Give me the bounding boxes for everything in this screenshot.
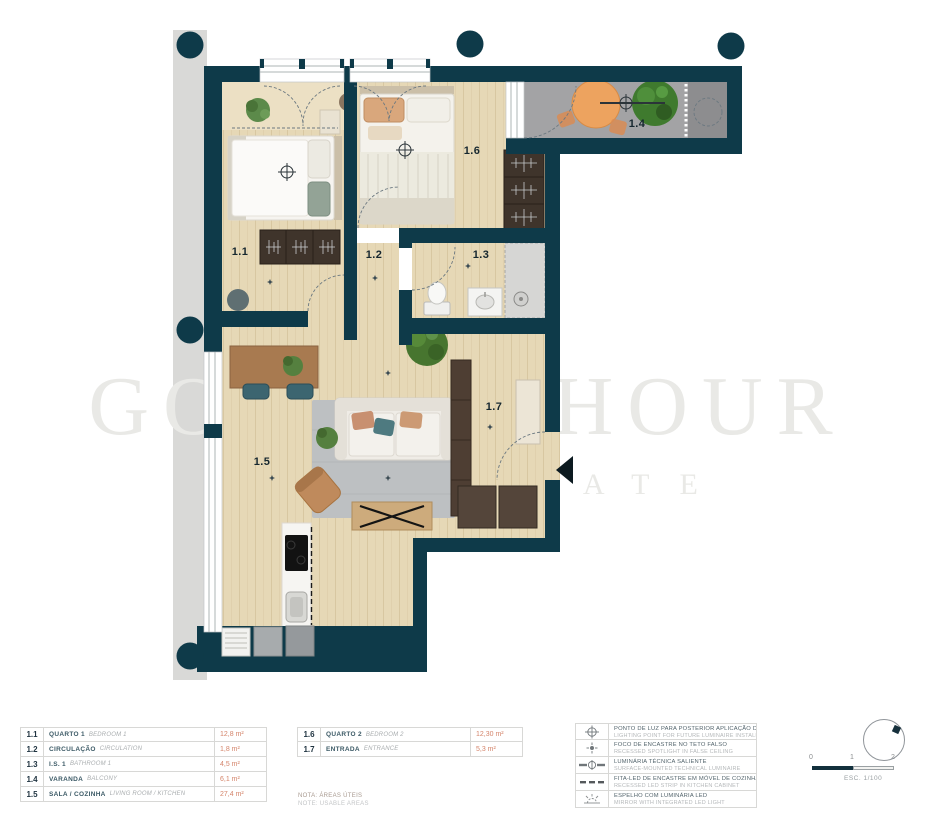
appliance-box-1 bbox=[254, 627, 282, 656]
wall-bedroom1-bottom bbox=[204, 311, 308, 327]
entrance-door-threshold bbox=[545, 432, 560, 480]
wardrobe-bedroom1 bbox=[260, 230, 340, 264]
room-label-1-2: 1.2 bbox=[366, 249, 383, 261]
room-label-1-6: 1.6 bbox=[464, 145, 481, 157]
coffee-table bbox=[352, 502, 432, 530]
shower-zone bbox=[505, 243, 545, 318]
wall-bedroom-divider bbox=[344, 82, 357, 340]
wall-right-upper bbox=[545, 140, 560, 432]
room-label-1-5: 1.5 bbox=[254, 456, 271, 468]
column bbox=[457, 31, 484, 58]
wardrobe-bedroom2 bbox=[504, 150, 544, 230]
bedside-table-1 bbox=[320, 110, 340, 134]
column bbox=[177, 32, 204, 59]
wall-living-bottom bbox=[413, 538, 560, 552]
room-label-1-4: 1.4 bbox=[629, 118, 646, 130]
appliances bbox=[222, 626, 314, 656]
plant-bedroom1 bbox=[246, 98, 270, 122]
wall-balcony-bottom bbox=[506, 138, 742, 154]
room-kitchen-floor bbox=[222, 538, 413, 628]
window-bedroom2 bbox=[350, 59, 430, 82]
appliance-box-2 bbox=[286, 626, 314, 656]
wall-corridor-right-stub bbox=[399, 243, 412, 248]
window-living-left bbox=[204, 352, 222, 632]
column bbox=[177, 317, 204, 344]
pouf-bedroom1 bbox=[227, 289, 249, 311]
room-label-1-7: 1.7 bbox=[486, 401, 503, 413]
window-bedroom1 bbox=[260, 59, 344, 82]
room-label-1-1: 1.1 bbox=[232, 246, 249, 258]
wall-corridor-right bbox=[399, 290, 412, 345]
wall-balcony-right bbox=[727, 66, 742, 154]
sink-vanity bbox=[468, 288, 502, 316]
wall-bathroom-bottom bbox=[399, 318, 560, 334]
room-label-1-3: 1.3 bbox=[473, 249, 490, 261]
kitchen-counter bbox=[282, 523, 312, 628]
entrance-bench bbox=[516, 380, 540, 444]
bed-2 bbox=[360, 86, 454, 224]
floor-plan-drawing: 1.1 1.2 1.3 1.4 1.5 1.6 1.7 bbox=[0, 0, 935, 825]
column bbox=[718, 33, 745, 60]
bedroom1-door-threshold bbox=[308, 311, 344, 327]
column bbox=[177, 643, 204, 670]
sofa bbox=[335, 398, 453, 460]
floor-plan-sheet: GOLDEN HOUR REAL ESTATE bbox=[0, 0, 935, 825]
washing-machine bbox=[222, 628, 250, 656]
balcony-glass-door bbox=[506, 82, 524, 138]
wall-bedroom2-bottom bbox=[399, 228, 560, 243]
plant-small bbox=[316, 427, 338, 449]
wall-stub bbox=[344, 228, 357, 243]
